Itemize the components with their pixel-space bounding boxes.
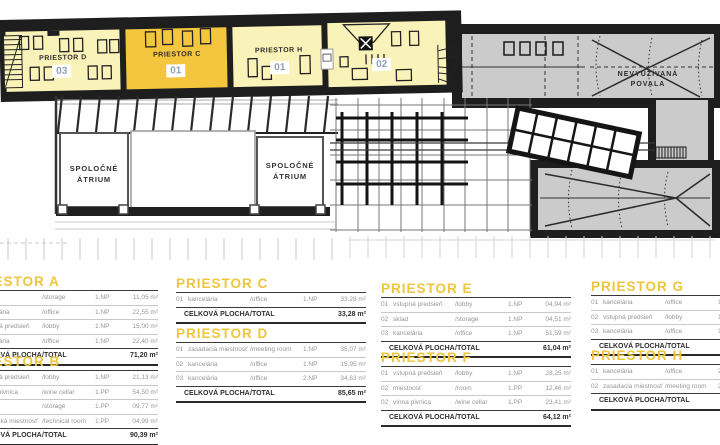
table-rows: 01vstupná predsieň/lobby1.NP28,25 m²02mi…: [381, 366, 571, 411]
table-row: 01kancelária/office1.NP: [591, 296, 720, 311]
table-row: 03sklad/storage1.PP09,77 m²: [0, 400, 158, 415]
table-row: 01zasadacia miestnosť/meeting room1.NP35…: [176, 343, 366, 358]
table-row: 01kancelária/office2.NP: [591, 365, 720, 380]
table-total-row: CELKOVÁ PLOCHA /TOTAL 90,39 m²: [0, 429, 158, 445]
table-row: 03kancelária/office2.NP34,63 m²: [176, 372, 366, 387]
table-title: PRIESTOR G: [591, 279, 720, 295]
table-priestor-d: PRIESTOR D 01zasadacia miestnosť/meeting…: [176, 326, 366, 403]
roof-rafters: [55, 96, 338, 214]
attic-lower-area: [530, 160, 720, 238]
table-priestor-g: PRIESTOR G 01kancelária/office1.NP02vstu…: [591, 279, 720, 356]
table-priestor-a: PRIESTOR A 01sklad/storage1.NP11,05 m²02…: [0, 274, 158, 366]
table-title: PRIESTOR E: [381, 281, 571, 297]
table-total-row: CELKOVÁ PLOCHA /TOTAL 85,65 m²: [176, 387, 366, 404]
table-title: PRIESTOR C: [176, 276, 366, 292]
table-rows: 01sklad/storage1.NP11,05 m²02kancelária/…: [0, 290, 158, 349]
table-priestor-h: PRIESTOR H 01kancelária/office2.NP02zasa…: [591, 348, 720, 411]
table-rows: 01vstupná predsieň/lobby1.NP21,13 m²02ví…: [0, 370, 158, 429]
floor-plan: PRIESTOR D 03 PRIESTOR C 01 PRIESTOR H 0…: [0, 0, 720, 266]
table-rows: 01kancelária/office1.NP33,28 m²: [176, 292, 366, 308]
floor-plan-page: PRIESTOR D 03 PRIESTOR C 01 PRIESTOR H 0…: [0, 0, 720, 445]
lower-level-linework: [0, 222, 335, 260]
table-row: 01vstupná predsieň/lobby1.NP28,25 m²: [381, 367, 571, 382]
table-row: 02sklad/storage1.NP04,51 m²: [381, 313, 571, 328]
table-row: 01sklad/storage1.NP11,05 m²: [0, 291, 158, 306]
room-band: PRIESTOR D 03 PRIESTOR C 01 PRIESTOR H 0…: [0, 10, 463, 102]
table-title: PRIESTOR D: [176, 326, 366, 342]
table-row: 04kancelária/office1.NP22,40 m²: [0, 335, 158, 350]
table-row: 02zasadacia miestnosť/meeting room2.NP: [591, 380, 720, 395]
room-priestor-e: [327, 21, 446, 87]
room-priestor-h: [232, 25, 322, 87]
table-rows: 01kancelária/office2.NP02zasadacia miest…: [591, 364, 720, 394]
table-priestor-e: PRIESTOR E 01vstupná predsieň/lobby1.NP0…: [381, 281, 571, 358]
table-priestor-f: PRIESTOR F 01vstupná predsieň/lobby1.NP2…: [381, 350, 571, 427]
table-priestor-b: PRIESTOR B 01vstupná predsieň/lobby1.NP2…: [0, 354, 158, 445]
room-number-badge: 03: [52, 65, 71, 78]
table-row: 03kancelária/office1.NP: [591, 325, 720, 340]
room-number-badge: 02: [372, 58, 391, 71]
wall-notch: [47, 31, 59, 36]
table-row: 02miestnosť/room1.PP12,46 m²: [381, 382, 571, 397]
table-title: PRIESTOR B: [0, 354, 158, 370]
atrium-label-left: SPOLOČNÉ ÁTRIUM: [60, 163, 128, 185]
room-number-badge: 01: [166, 64, 185, 77]
table-title: PRIESTOR A: [0, 274, 158, 290]
table-rows: 01vstupná predsieň/lobby1.NP04,94 m²02sk…: [381, 297, 571, 342]
table-row: 02vínna pivnica/wine cellar1.PP54,50 m²: [0, 386, 158, 401]
table-row: 03kancelária/office1.NP51,59 m²: [381, 327, 571, 342]
table-rows: 01zasadacia miestnosť/meeting room1.NP35…: [176, 342, 366, 387]
table-row: 03vstupná predsieň/lobby1.NP15,00 m²: [0, 320, 158, 335]
table-row: 04technická miestnosť/technical room1.PP…: [0, 415, 158, 430]
table-row: 02vínna pivnica/wine cellar1.PP23,41 m²: [381, 396, 571, 411]
table-priestor-c: PRIESTOR C 01kancelária/office1.NP33,28 …: [176, 276, 366, 324]
table-title: PRIESTOR H: [591, 348, 720, 364]
table-row: 02kancelária/office1.NP15,95 m²: [176, 358, 366, 373]
table-row: 02vstupná predsieň/lobby1.NP: [591, 311, 720, 326]
table-total-row: CELKOVÁ PLOCHA /TOTAL 64,12 m²: [381, 411, 571, 428]
table-total-row: CELKOVÁ PLOCHA /TOTAL 33,28 m²: [176, 308, 366, 325]
table-row: 01vstupná predsieň/lobby1.NP21,13 m²: [0, 371, 158, 386]
table-row: 01kancelária/office1.NP33,28 m²: [176, 293, 366, 308]
table-title: PRIESTOR F: [381, 350, 571, 366]
table-rows: 01kancelária/office1.NP02vstupná predsie…: [591, 295, 720, 340]
room-number-badge: 01: [270, 61, 289, 74]
lower-level-linework-right: [350, 236, 715, 258]
table-total-row: CELKOVÁ PLOCHA /TOTAL: [591, 394, 720, 411]
table-row: 02kancelária/office1.NP22,55 m²: [0, 306, 158, 321]
attic-label: NEVYUŽÍVANÁ POVALA: [598, 70, 698, 90]
table-row: 01vstupná predsieň/lobby1.NP04,94 m²: [381, 298, 571, 313]
atrium-label-right: SPOLOČNÉ ÁTRIUM: [257, 160, 323, 182]
